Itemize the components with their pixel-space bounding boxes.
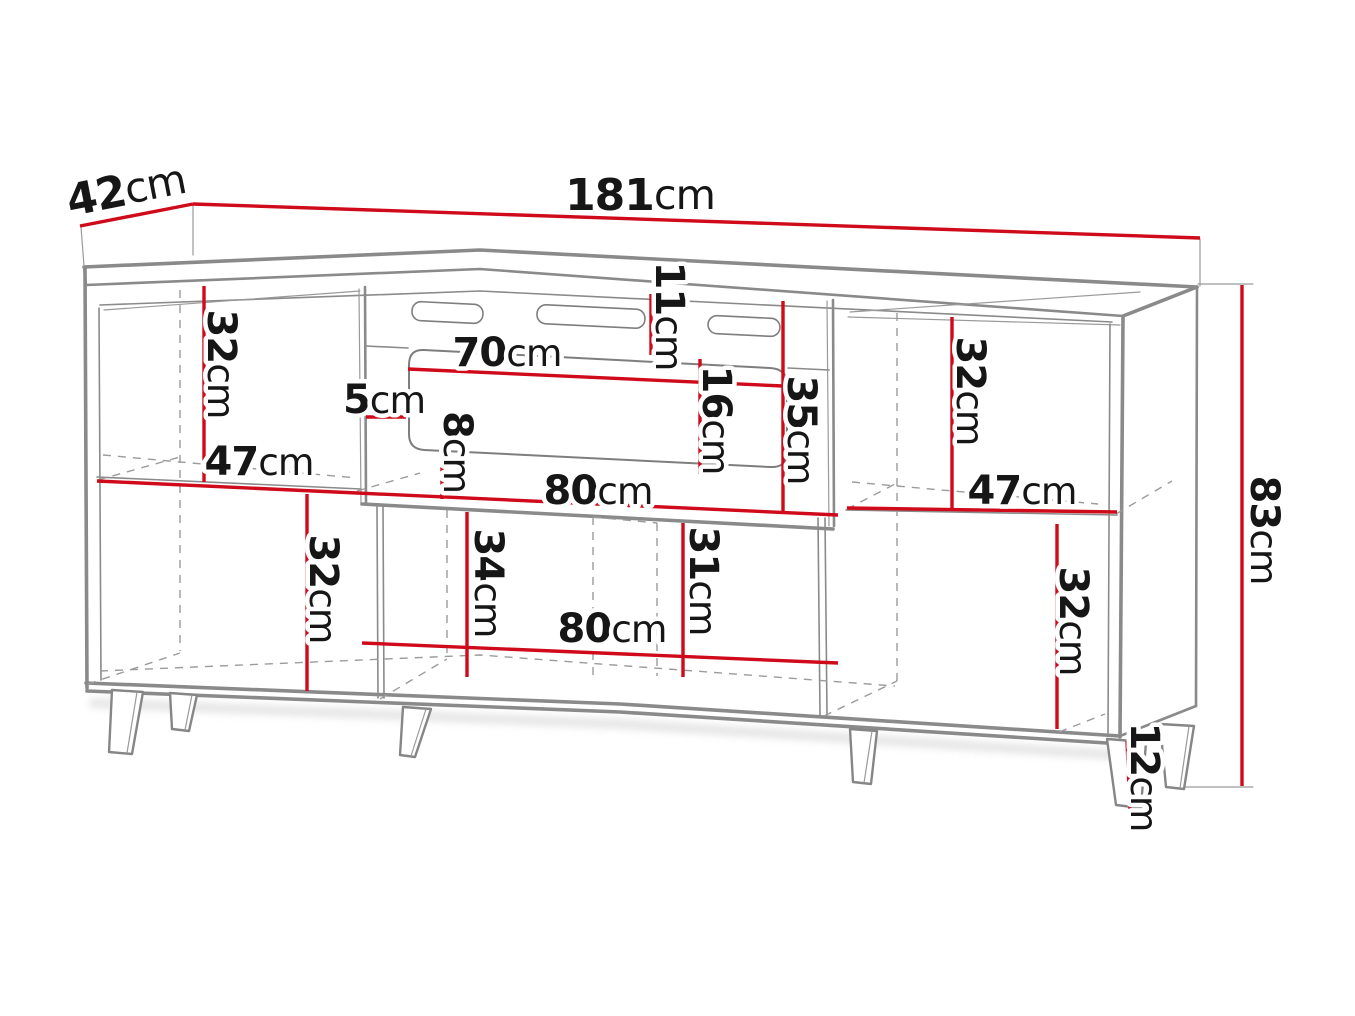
dim-label-80-lower: 80cm xyxy=(558,606,667,652)
dim-label-80-upper: 80cm xyxy=(544,468,653,514)
left-inner-wall xyxy=(99,308,101,680)
divider-right-upper-b xyxy=(833,300,834,526)
dim-label-leg-height: 12cm xyxy=(1121,723,1167,832)
leg-front-left xyxy=(109,690,143,754)
dashed-floor-depth-mid2 xyxy=(824,681,897,716)
tick-42-left xyxy=(81,227,84,266)
divider-right-upper-a xyxy=(827,301,829,526)
divider-right-lower-a xyxy=(818,518,820,715)
dim-label-depth: 42cm xyxy=(62,153,190,226)
right-inner-wall xyxy=(1108,324,1110,733)
dim-label-left-upper-32: 32cm xyxy=(198,310,244,419)
dim-label-gap-5: 5cm xyxy=(343,377,425,423)
vent-slot-right xyxy=(708,315,781,336)
dashed-floor-depth-mid xyxy=(380,659,447,699)
divider-left-lower-a xyxy=(377,506,378,698)
leg-back-left xyxy=(170,693,197,731)
diagram-canvas: 42cm 181cm 83cm 12cm 32cm 47cm 32cm 5cm … xyxy=(0,0,1355,1016)
leg-front-middle xyxy=(400,707,431,757)
left-backwall-top-edge xyxy=(104,291,360,310)
dim-label-left-47: 47cm xyxy=(205,439,314,485)
divider-left-lower-b xyxy=(383,506,384,698)
vent-band-line-left xyxy=(366,346,408,348)
dashed-right-shelf-depth2 xyxy=(1116,481,1172,514)
vent-band-line-right xyxy=(788,368,829,370)
dim-label-gap-8: 8cm xyxy=(434,411,480,493)
dim-label-right-upper-32: 32cm xyxy=(947,337,993,446)
dim-label-middle-34: 34cm xyxy=(465,529,511,638)
dim-label-width: 181cm xyxy=(565,170,715,221)
right-backwall-top-edge xyxy=(850,292,1140,312)
dim-label-middle-31: 31cm xyxy=(680,527,726,636)
dim-label-fireplace-70: 70cm xyxy=(453,330,562,376)
dim-label-right-lower-32: 32cm xyxy=(1050,567,1096,676)
divider-right-lower-b xyxy=(825,518,827,715)
front-right-edge xyxy=(1120,318,1123,737)
dim-label-right-47: 47cm xyxy=(968,468,1077,514)
back-right-edge xyxy=(1196,289,1197,706)
left-edge xyxy=(85,268,87,688)
dim-label-left-lower-32: 32cm xyxy=(300,535,346,644)
dim-label-vent-11: 11cm xyxy=(646,262,692,371)
leg-back-middle xyxy=(850,729,877,784)
dim-label-middle-35: 35cm xyxy=(778,376,824,485)
vent-slot-middle xyxy=(537,304,646,328)
dashed-right-shelf-depth xyxy=(847,483,897,509)
furniture-dimension-diagram: 42cm 181cm 83cm 12cm 32cm 47cm 32cm 5cm … xyxy=(0,0,1355,1016)
vent-slot-left xyxy=(412,301,484,323)
top-right-end xyxy=(1123,287,1197,316)
dim-label-opening-16: 16cm xyxy=(693,366,739,475)
bottom-edge-lower xyxy=(87,691,1122,744)
dashed-floor-depth-right xyxy=(1059,714,1105,732)
dim-label-height: 83cm xyxy=(1241,476,1287,585)
